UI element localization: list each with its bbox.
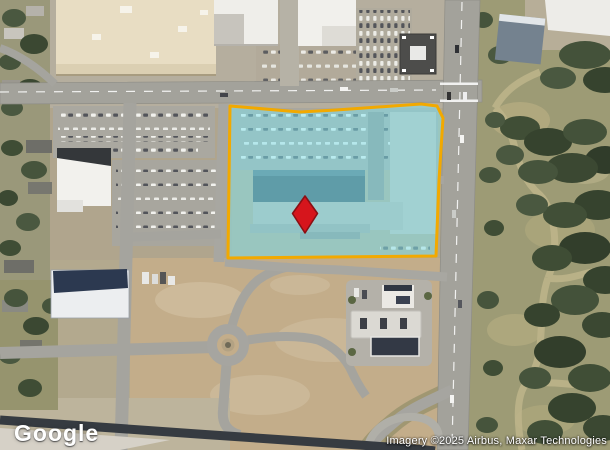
- gas-station-complex: [346, 280, 432, 366]
- parcel-boundary-overlay[interactable]: [228, 104, 443, 258]
- topright-building: [545, 0, 610, 36]
- google-logo[interactable]: Google: [14, 420, 99, 447]
- park-layer: [468, 0, 610, 450]
- bluegray-building: [495, 14, 546, 65]
- imagery-attribution: Imagery ©2025 Airbus, Maxar Technologies: [386, 435, 607, 447]
- map-canvas[interactable]: Google Imagery ©2025 Airbus, Maxar Techn…: [0, 0, 610, 450]
- satellite-imagery: [0, 0, 610, 450]
